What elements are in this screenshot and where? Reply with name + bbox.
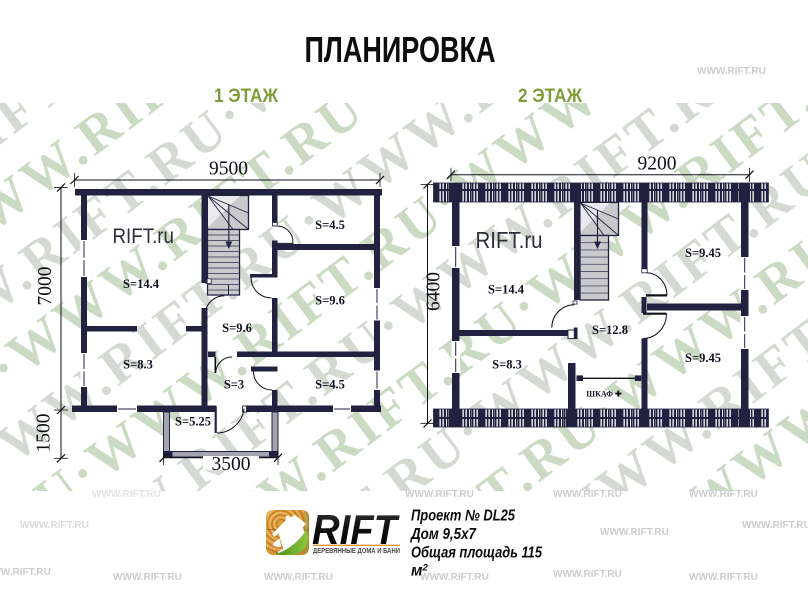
svg-text:RIFT.ru: RIFT.ru (476, 227, 543, 253)
svg-text:6400: 6400 (424, 272, 445, 311)
svg-text:S=9.6: S=9.6 (315, 294, 345, 308)
svg-text:S=3: S=3 (224, 378, 244, 392)
svg-text:Дом 9,5х7: Дом 9,5х7 (409, 526, 477, 543)
svg-text:Проект № DL25: Проект № DL25 (411, 508, 515, 525)
svg-text:1500: 1500 (34, 414, 55, 453)
svg-text:WWW.RIFT.RU: WWW.RIFT.RU (0, 567, 51, 578)
svg-text:ШКАФ ✚: ШКАФ ✚ (586, 390, 622, 399)
svg-text:Общая площадь 115: Общая площадь 115 (411, 545, 542, 562)
svg-text:2 ЭТАЖ: 2 ЭТАЖ (518, 86, 583, 107)
svg-text:S=4.5: S=4.5 (315, 218, 345, 232)
svg-text:S=14.4: S=14.4 (123, 277, 160, 291)
svg-text:9500: 9500 (209, 159, 248, 180)
svg-text:S=8.3: S=8.3 (492, 358, 522, 372)
svg-text:ДЕРЕВЯННЫЕ ДОМА И БАНИ: ДЕРЕВЯННЫЕ ДОМА И БАНИ (313, 546, 400, 555)
svg-text:WWW.RIFT.RU: WWW.RIFT.RU (742, 520, 808, 531)
svg-text:WWW.RIFT.RU: WWW.RIFT.RU (553, 569, 622, 580)
svg-text:7000: 7000 (35, 267, 56, 306)
svg-text:WWW.RIFT.RU: WWW.RIFT.RU (420, 572, 489, 583)
svg-text:S=9.45: S=9.45 (685, 351, 721, 365)
svg-text:WWW.RIFT.RU: WWW.RIFT.RU (264, 572, 333, 583)
svg-text:WWW.RIFT.RU: WWW.RIFT.RU (689, 572, 758, 583)
svg-text:ПЛАНИРОВКА: ПЛАНИРОВКА (305, 29, 496, 70)
svg-text:WWW.RIFT.RU: WWW.RIFT.RU (689, 489, 758, 500)
svg-text:WWW.RIFT.RU: WWW.RIFT.RU (113, 572, 182, 583)
svg-text:S=4.5: S=4.5 (315, 378, 345, 392)
svg-text:WWW.RIFT.RU: WWW.RIFT.RU (20, 520, 89, 531)
svg-text:WWW.RIFT.RU: WWW.RIFT.RU (92, 489, 161, 500)
svg-text:S=9.45: S=9.45 (685, 246, 721, 260)
svg-text:S=14.4: S=14.4 (488, 283, 525, 297)
svg-text:S=12.8: S=12.8 (592, 323, 628, 337)
svg-text:WWW.RIFT.RU: WWW.RIFT.RU (405, 489, 474, 500)
svg-text:RIFT.ru: RIFT.ru (113, 225, 175, 248)
svg-text:WWW.RIFT.RU: WWW.RIFT.RU (553, 489, 622, 500)
svg-text:3500: 3500 (212, 454, 251, 475)
svg-text:S=9.6: S=9.6 (222, 321, 252, 335)
svg-text:9200: 9200 (638, 154, 677, 175)
svg-text:WWW.RIFT.RU: WWW.RIFT.RU (697, 66, 766, 77)
svg-text:1 ЭТАЖ: 1 ЭТАЖ (214, 86, 279, 107)
svg-text:WWW.RIFT.RU: WWW.RIFT.RU (600, 527, 669, 538)
svg-text:S=8.3: S=8.3 (123, 358, 153, 372)
svg-text:S=5.25: S=5.25 (175, 415, 211, 429)
